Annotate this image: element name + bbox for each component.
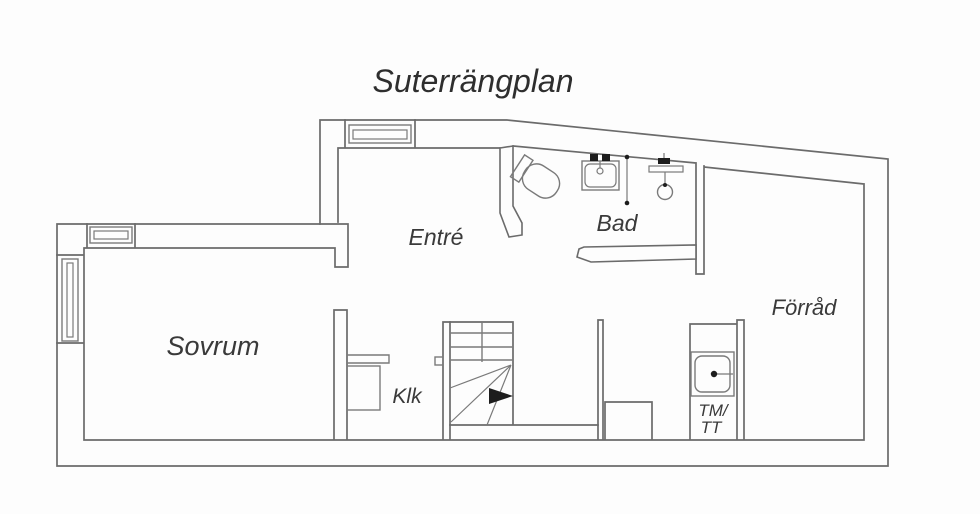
floor-plan-page: Suterrängplan [0,0,980,514]
shower-screen-icon [625,155,630,206]
wardrobe-icon [347,366,380,410]
windows [62,125,411,341]
label-bad: Bad [597,210,639,236]
building-walls [57,120,888,466]
stairs-outline [450,322,598,425]
closet-rod [347,355,389,363]
label-entre: Entré [409,224,464,250]
window-entre-top [349,125,411,143]
shower-icon [649,153,683,200]
bad-bottom-wall [577,245,696,262]
window-sovrum-top [90,227,132,243]
toilet-icon [510,154,565,203]
floor-plan-image: Suterrängplan [0,0,980,514]
stairs [435,322,598,425]
label-klk: Klk [392,385,423,408]
label-sovrum: Sovrum [166,331,259,361]
klk-closet [347,355,389,410]
stairs-wall-tab [435,357,443,365]
bathroom-fixtures [510,153,683,205]
label-tt: TT [701,418,723,437]
washbasin-icon [582,154,619,190]
stairs-treads [450,322,513,362]
page-title: Suterrängplan [372,63,573,99]
outer-wall [57,120,888,466]
entre-bad-wall [500,146,522,237]
label-forrad: Förråd [772,295,838,320]
window-sovrum-left [62,259,78,341]
inner-walls [57,120,864,440]
laundry-sink-icon [691,352,734,396]
